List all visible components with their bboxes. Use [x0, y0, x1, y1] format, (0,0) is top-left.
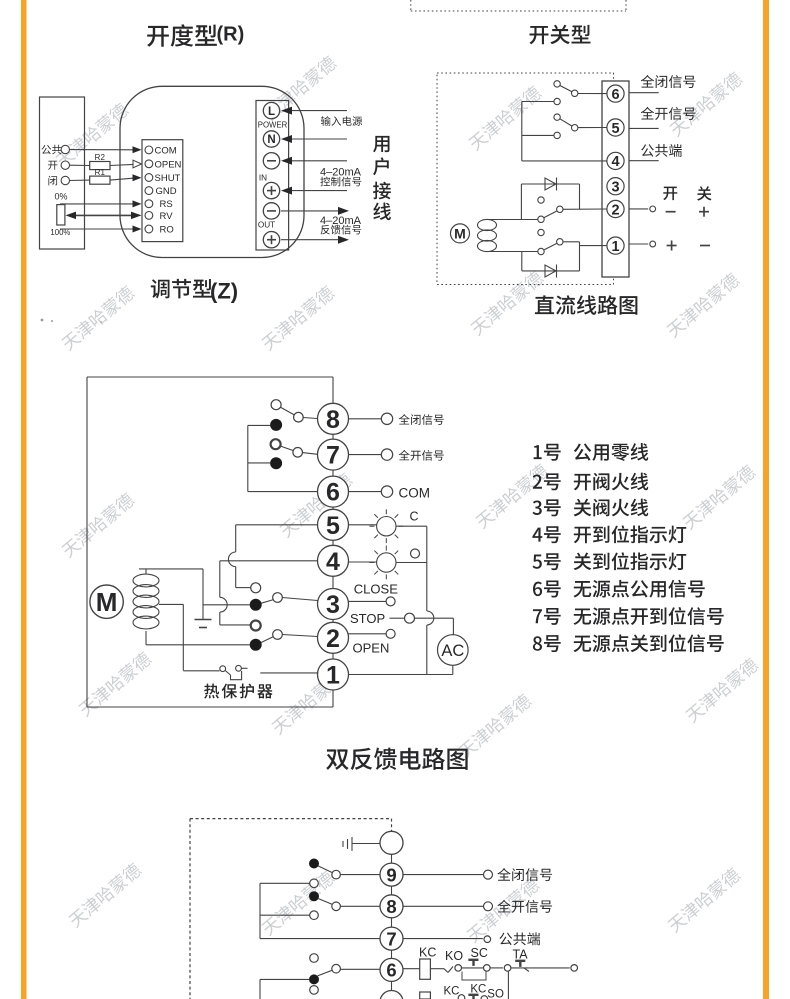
svg-text:3: 3 [326, 591, 340, 619]
svg-text:SHUT: SHUT [155, 173, 181, 184]
svg-text:2: 2 [611, 202, 619, 218]
svg-text:6: 6 [386, 960, 396, 981]
svg-text:6: 6 [611, 87, 619, 103]
svg-text:POWER: POWER [258, 121, 288, 130]
svg-text:7: 7 [386, 928, 396, 949]
svg-text:(R): (R) [217, 24, 245, 46]
svg-text:C: C [410, 509, 419, 523]
svg-text:7: 7 [326, 442, 340, 470]
svg-text:3: 3 [611, 179, 619, 195]
svg-text:RV: RV [160, 211, 174, 222]
svg-text:SC: SC [471, 946, 488, 960]
svg-text:SO: SO [487, 989, 504, 999]
svg-text:GND: GND [156, 186, 177, 197]
svg-text:OPEN: OPEN [155, 159, 182, 170]
svg-text:4: 4 [326, 548, 340, 576]
svg-text:1: 1 [326, 662, 340, 690]
svg-text:KC: KC [444, 986, 460, 998]
svg-text:COM: COM [399, 485, 431, 500]
svg-text:CLOSE: CLOSE [354, 581, 398, 596]
svg-text:RO: RO [160, 224, 174, 235]
svg-text:8: 8 [326, 406, 340, 434]
svg-text:5: 5 [326, 512, 340, 540]
svg-text:KO: KO [445, 949, 463, 963]
svg-text:STOP: STOP [350, 611, 385, 626]
svg-text:TA: TA [513, 948, 529, 962]
svg-text:2: 2 [326, 625, 340, 653]
svg-text:R2: R2 [95, 153, 106, 162]
svg-text:9: 9 [386, 864, 396, 885]
svg-text:N: N [267, 134, 275, 146]
svg-text:COM: COM [155, 145, 177, 156]
svg-text:AC: AC [441, 642, 464, 660]
svg-text:L: L [268, 106, 275, 118]
svg-text:(Z): (Z) [210, 279, 238, 304]
svg-text:M: M [454, 226, 466, 242]
svg-text:M: M [96, 587, 118, 617]
svg-text:6: 6 [326, 479, 340, 507]
svg-text:R1: R1 [95, 168, 106, 177]
svg-text:RS: RS [160, 199, 173, 210]
svg-text:1: 1 [611, 239, 619, 255]
svg-text:8: 8 [386, 896, 396, 917]
svg-text:0%: 0% [55, 191, 68, 201]
svg-text:5: 5 [611, 121, 619, 137]
svg-text:OPEN: OPEN [353, 640, 390, 655]
svg-text:OUT: OUT [258, 220, 275, 229]
svg-text:4: 4 [611, 154, 619, 170]
svg-text:IN: IN [259, 173, 267, 182]
svg-text:KC: KC [419, 945, 436, 959]
